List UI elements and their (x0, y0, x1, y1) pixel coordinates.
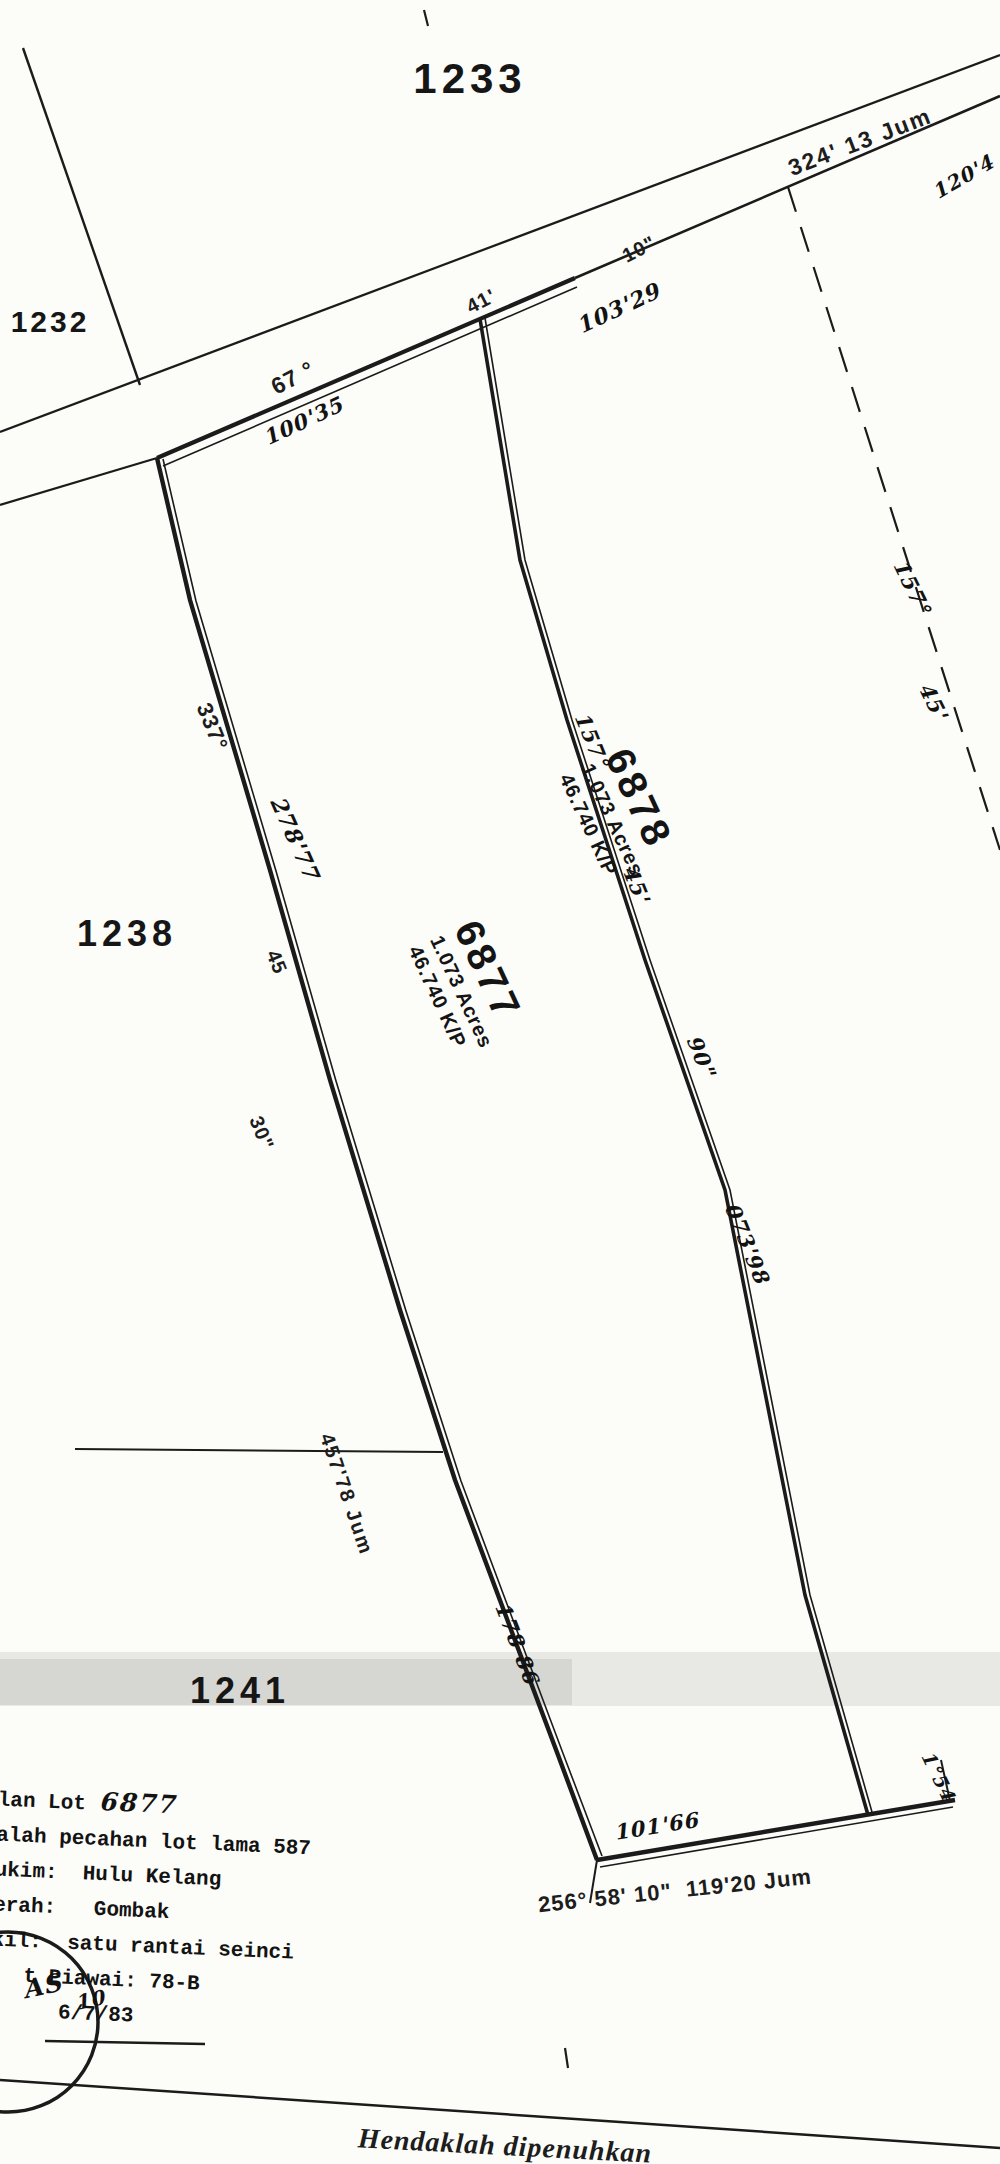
border-tick-line (565, 2048, 568, 2068)
road-lower-edge-line (0, 458, 157, 505)
stamp-text-2: 10 (73, 1987, 106, 2013)
top-tick-line (424, 10, 428, 26)
note-lot-number-handwritten: 6877 (98, 1787, 177, 1819)
stamp-text-1: AS (20, 1970, 64, 2003)
lot-label-1241: 1241 (190, 1673, 290, 1709)
north-boundary-thick-line (157, 278, 575, 458)
east-boundary-dashed-line (788, 187, 1000, 850)
lot-label-1233: 1233 (413, 58, 526, 100)
north-boundary-companion-line (163, 287, 577, 466)
lot-label-1232: 1232 (11, 307, 90, 337)
tie-line (75, 1449, 443, 1452)
west-boundary-companion-line (163, 459, 602, 1856)
middle-boundary-companion-line (485, 318, 872, 1812)
scanned-survey-plan: 1233 1232 1238 1241 67 ° 41' 10" 324' 13… (0, 0, 1000, 2164)
lot-label-1238: 1238 (77, 916, 177, 952)
road-upper-edge-line (0, 55, 1000, 432)
plan-notes-block: elan Lot 6877 dalah pecahan lot lama 587… (0, 1779, 313, 2041)
stamp-underline (45, 2041, 205, 2044)
